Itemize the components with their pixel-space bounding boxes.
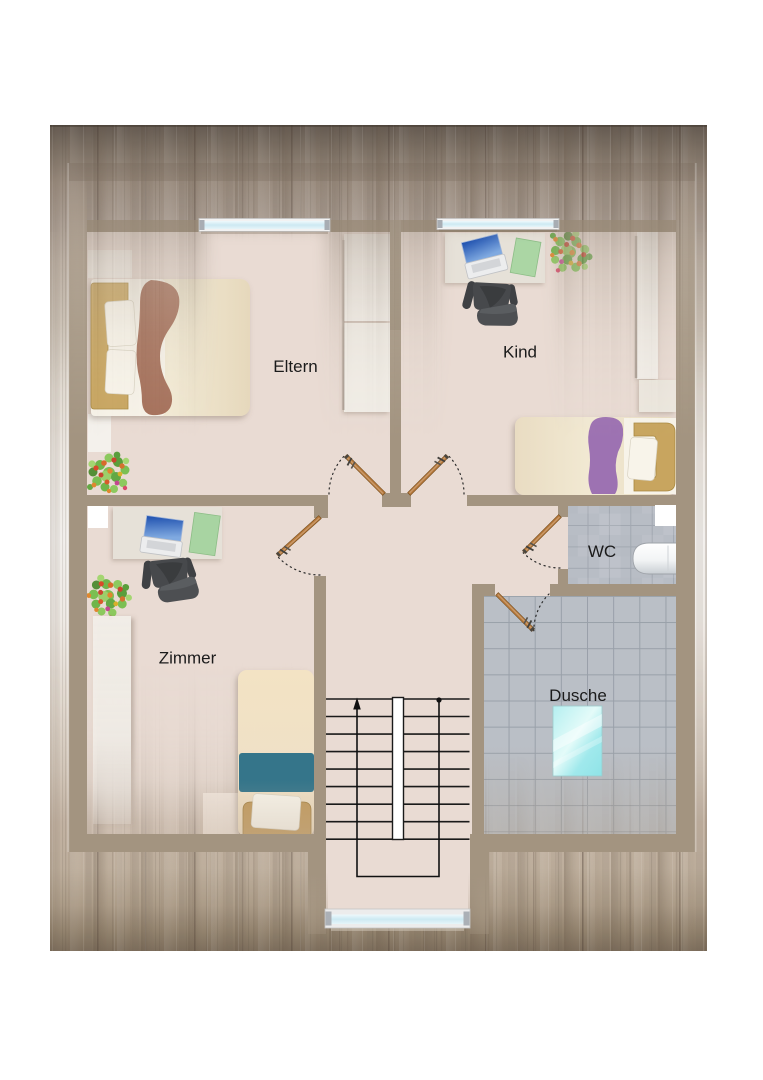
svg-text:Kind: Kind	[503, 343, 537, 362]
svg-text:WC: WC	[588, 542, 616, 561]
svg-text:Dusche: Dusche	[549, 686, 607, 705]
svg-text:Eltern: Eltern	[273, 357, 317, 376]
svg-text:Zimmer: Zimmer	[159, 649, 217, 668]
